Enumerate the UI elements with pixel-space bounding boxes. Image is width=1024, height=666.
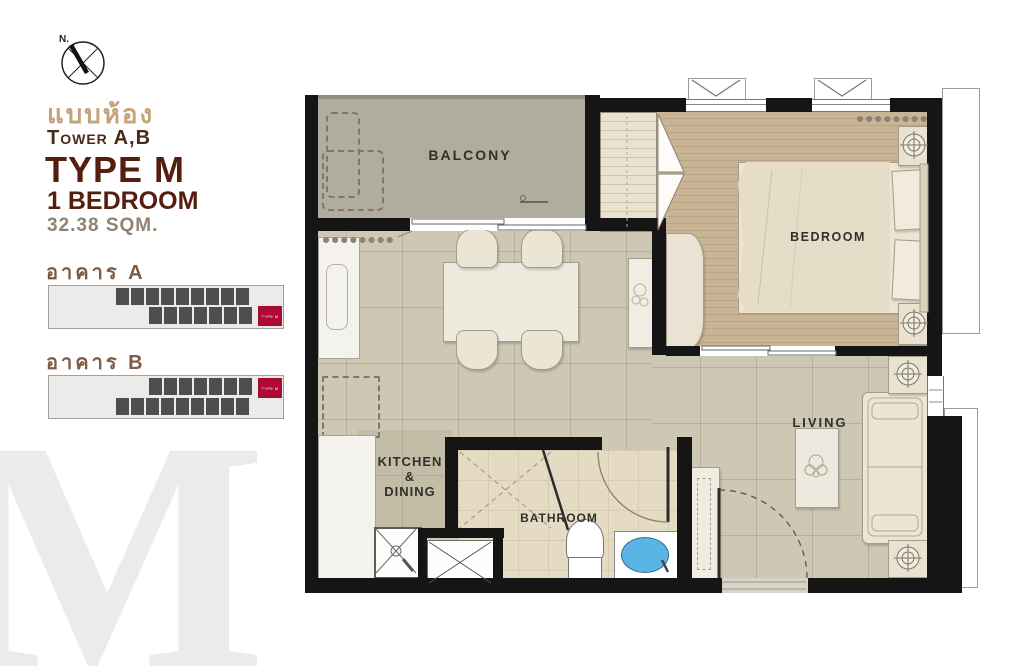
highlighted-unit: TYPE M xyxy=(258,378,282,398)
bedroom-label: BEDROOM xyxy=(768,230,888,244)
dining-chair xyxy=(521,330,563,370)
building-b-units-bottom xyxy=(116,398,251,415)
side-table xyxy=(888,356,930,394)
wall-right xyxy=(927,350,942,376)
ac-unit-outline xyxy=(322,150,384,211)
building-a-diagram: TYPE M xyxy=(48,285,284,329)
wall-top xyxy=(766,98,812,112)
unit-cell xyxy=(131,398,144,415)
wall-bottom xyxy=(808,578,962,593)
unit-cell xyxy=(209,378,222,395)
window-glazing xyxy=(812,99,890,112)
unit-cell xyxy=(209,307,222,324)
wall-balcony-right xyxy=(585,95,600,231)
unit-cell xyxy=(236,288,249,305)
unit-cell xyxy=(191,398,204,415)
dining-chair xyxy=(521,228,563,268)
wall-shower-alcove xyxy=(493,538,503,593)
bathroom-label: BATHROOM xyxy=(500,512,618,526)
tower-label: Tower A,B xyxy=(47,127,151,150)
kitchen-label-line: & xyxy=(358,470,462,485)
unit-cell xyxy=(221,398,234,415)
building-a-units-bottom xyxy=(149,307,254,324)
unit-cell xyxy=(236,398,249,415)
building-b-label: อาคาร B xyxy=(46,346,146,378)
unit-cell xyxy=(224,378,237,395)
counter-sink xyxy=(326,264,348,330)
wall-right-column xyxy=(927,416,962,583)
pillow xyxy=(891,169,926,231)
kitchen-counter xyxy=(318,237,360,359)
wash-basin xyxy=(621,537,669,573)
unit-cell xyxy=(131,288,144,305)
unit-cell xyxy=(146,398,159,415)
casement-window-icon xyxy=(688,78,746,101)
unit-cell xyxy=(149,378,162,395)
floorplan-page: M N. แบบห้อง Tower A,B TYPE M 1 BEDROOM … xyxy=(0,0,1024,666)
unit-cell xyxy=(116,288,129,305)
dresser xyxy=(666,233,704,349)
sofa xyxy=(862,392,930,544)
wall-bedroom-bottom xyxy=(835,346,927,356)
wall-bathroom-right xyxy=(677,437,692,593)
pillow xyxy=(891,239,926,301)
unit-cell xyxy=(164,307,177,324)
unit-cell xyxy=(146,288,159,305)
watermark-letter: M xyxy=(0,425,266,666)
coffee-table xyxy=(795,428,839,508)
wall-shower-alcove xyxy=(418,538,427,593)
bedroom-count-label: 1 BEDROOM xyxy=(47,187,198,216)
window-glazing xyxy=(686,99,766,112)
dining-chair xyxy=(456,330,498,370)
building-a-units-top xyxy=(116,288,251,305)
wall-right xyxy=(927,98,942,350)
bedroom-sliding-door-opening xyxy=(700,346,835,356)
building-a-label: อาคาร A xyxy=(46,256,146,288)
unit-cell xyxy=(239,378,252,395)
unit-cell xyxy=(161,398,174,415)
unit-cell xyxy=(224,307,237,324)
unit-cell xyxy=(116,398,129,415)
toilet-tank xyxy=(568,557,602,580)
dining-chair xyxy=(456,228,498,268)
type-label: TYPE M xyxy=(45,149,185,191)
unit-cell xyxy=(176,398,189,415)
area-label: 32.38 SQM. xyxy=(47,215,158,237)
unit-cell xyxy=(206,398,219,415)
balcony-label: BALCONY xyxy=(400,147,540,163)
kitchen-label-line: DINING xyxy=(358,485,462,500)
wall-shower-alcove xyxy=(418,528,504,538)
wall-bottom xyxy=(305,578,722,593)
side-table xyxy=(888,540,930,578)
unit-cell xyxy=(161,288,174,305)
casement-window-icon xyxy=(814,78,872,101)
cabinet-detail xyxy=(697,478,711,570)
unit-cell xyxy=(179,307,192,324)
window-glazing xyxy=(927,376,944,416)
building-b-units-top xyxy=(149,378,254,395)
wardrobe xyxy=(600,112,657,232)
living-label: LIVING xyxy=(770,416,870,431)
shoe-cabinet xyxy=(688,467,720,580)
wall-left xyxy=(305,95,318,593)
fridge-space-outline xyxy=(322,376,380,438)
wall-bedroom-bottom xyxy=(666,346,700,356)
wall-balcony xyxy=(305,218,410,231)
balcony-railing xyxy=(318,95,585,99)
sliding-door-opening xyxy=(410,219,585,230)
unit-cell xyxy=(221,288,234,305)
kitchen-label-line: KITCHEN xyxy=(358,455,462,470)
unit-cell xyxy=(149,307,162,324)
unit-cell xyxy=(206,288,219,305)
entry-threshold xyxy=(722,578,808,593)
kitchen-sink xyxy=(374,527,422,579)
highlighted-unit: TYPE M xyxy=(258,306,282,326)
unit-cell xyxy=(191,288,204,305)
compass-north-label: N. xyxy=(59,34,69,45)
unit-cell xyxy=(176,288,189,305)
exterior-ledge-top-right xyxy=(942,88,980,334)
unit-cell xyxy=(194,307,207,324)
wall-divider xyxy=(652,231,666,355)
building-b-diagram: TYPE M xyxy=(48,375,284,419)
unit-cell xyxy=(239,307,252,324)
wall-top xyxy=(585,98,686,112)
wall-balcony xyxy=(585,218,666,231)
wall-top xyxy=(890,98,927,112)
unit-cell xyxy=(164,378,177,395)
console-cabinet xyxy=(628,258,654,348)
kitchen-dining-label: KITCHEN & DINING xyxy=(358,455,462,500)
unit-cell xyxy=(194,378,207,395)
unit-cell xyxy=(179,378,192,395)
wall-bathroom-top xyxy=(445,437,602,450)
